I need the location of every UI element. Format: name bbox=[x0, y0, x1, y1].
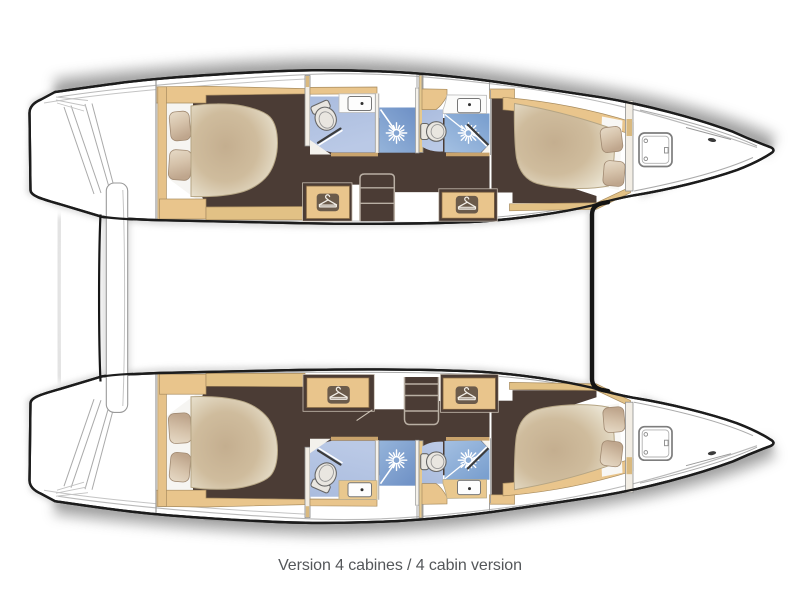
svg-text:Version 4 cabines / 4 cabin ve: Version 4 cabines / 4 cabin version bbox=[278, 557, 522, 574]
